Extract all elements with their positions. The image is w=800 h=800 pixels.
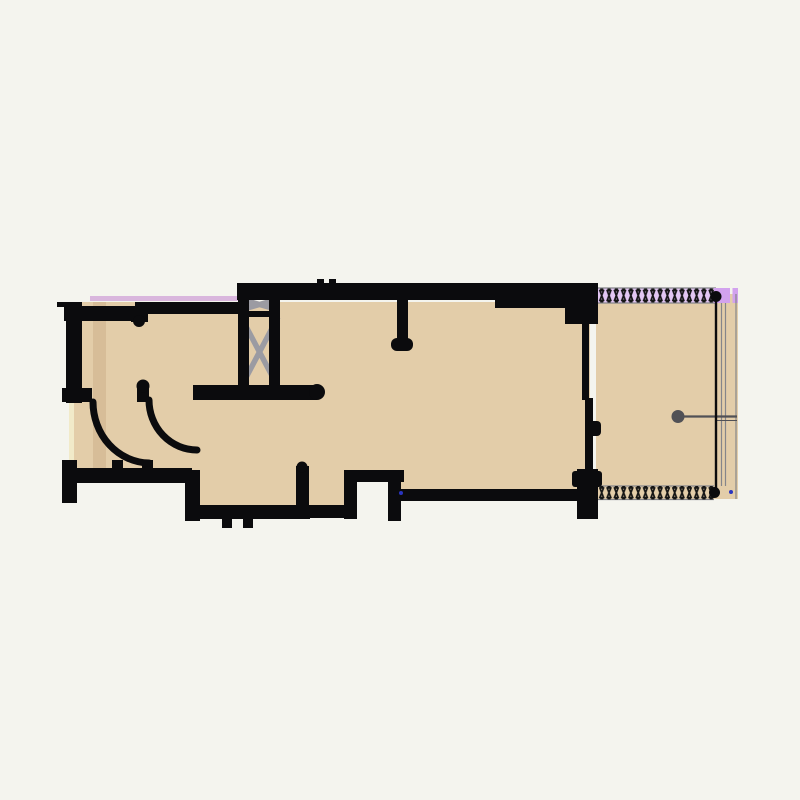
insulation-hatch-top	[598, 289, 715, 303]
wall-thin-top	[135, 302, 240, 314]
wall-stub-below-2	[243, 519, 253, 528]
wall-tick-top-2	[329, 279, 336, 284]
purple-wall-cap-sliver	[733, 288, 739, 303]
door-jamb-a-cap	[133, 315, 145, 327]
door-jamb-b-cap	[137, 380, 150, 393]
section-marker-dot	[672, 410, 685, 423]
wall-right-lower	[585, 398, 593, 475]
wall-stub-top-cap	[391, 338, 413, 351]
floor-plan-canvas	[0, 0, 800, 800]
window-line	[69, 403, 74, 463]
blue-marker-1	[399, 491, 403, 495]
wall-stub-top	[397, 300, 408, 342]
insulation-hatch-bottom	[598, 486, 714, 500]
shaft-divider	[238, 311, 280, 317]
wall-bottom-2	[185, 505, 310, 519]
wall-middle-horizontal	[193, 385, 317, 400]
party-wall-purple-line	[90, 296, 240, 301]
blue-marker-2	[729, 490, 733, 494]
wall-bump-1	[112, 460, 123, 469]
wall-stub-below-1	[222, 519, 232, 528]
wall-middle-endcap	[309, 384, 325, 400]
wall-right-hinge-knob	[588, 421, 601, 436]
wall-right-upper	[582, 320, 589, 400]
railing-post-dot-top	[711, 291, 722, 302]
floor-plan-drawing	[0, 0, 800, 800]
wall-south	[399, 489, 596, 501]
railing-post-dot-bottom	[709, 487, 720, 498]
wall-corner-block-ne	[565, 283, 598, 324]
wall-vertical-3-cap	[297, 462, 308, 473]
wall-tick-top-1	[317, 279, 324, 284]
wall-bottom-1	[66, 468, 192, 483]
wall-tick-left	[57, 302, 66, 307]
